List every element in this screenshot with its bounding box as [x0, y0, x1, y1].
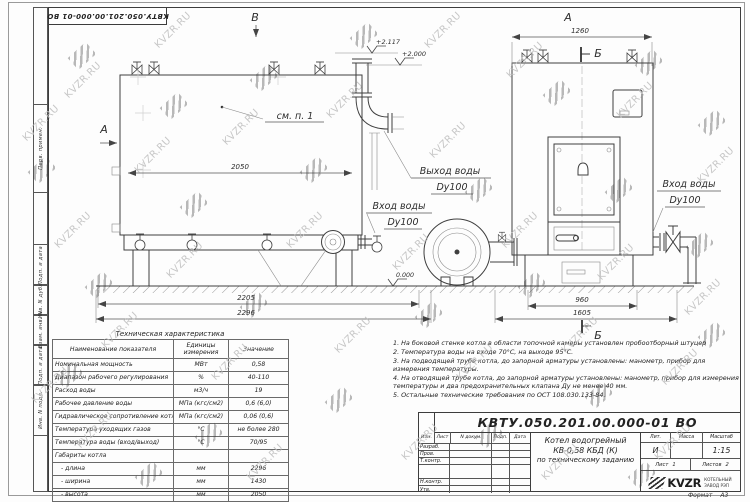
title-line-2: КВ-0,58 КБД (К) — [531, 446, 640, 456]
mass-value — [671, 443, 703, 458]
technical-notes: 1. На боковой стенке котла в области топ… — [393, 339, 741, 400]
role-row: Н.контр. — [419, 479, 530, 486]
see-note-callout: см. п. 1 — [221, 106, 324, 122]
lit-mass-scale-values: И 1:15 — [641, 443, 740, 459]
company-logo-row: KVZR КОТЕЛЬНЫЙ ЗАВОД РЭП — [641, 471, 740, 494]
boiler-side-view — [112, 59, 404, 286]
see-note-label: см. п. 1 — [277, 111, 314, 122]
sheet-number: 1 — [672, 462, 675, 468]
role-row: Разраб. — [419, 444, 530, 451]
table-row: Гидравлическое сопротивление котлаМПа (к… — [53, 411, 289, 424]
revision-table: Изм. Лист N докум. Подп. Дата Разраб. Пр… — [419, 432, 531, 491]
format-note: Формат А3 — [688, 492, 728, 499]
scale-value: 1:15 — [703, 443, 740, 458]
inlet-dy-label-right: Dy100 — [669, 195, 700, 206]
dim-2050: 2050 — [231, 163, 249, 171]
title-block-right: Лит. Масса Масштаб И 1:15 Лист 1 Листов … — [641, 432, 740, 491]
pipe-labels: Выход воды Dy100 Вход воды Dy100 Вход во… — [366, 131, 721, 233]
margin-cell: Подп. и дата — [34, 344, 47, 386]
table-row: Габариты котла — [53, 450, 289, 463]
role-row: Утв. — [419, 486, 530, 493]
table-row: Расход водым3/ч19 — [53, 385, 289, 398]
blower-fan — [424, 219, 517, 286]
lit-mass-scale-headers: Лит. Масса Масштаб — [641, 432, 740, 443]
tech-table: Наименование показателя Единицы измерени… — [52, 339, 289, 502]
table-row: - ширинамм1430 — [53, 476, 289, 489]
note-5: 5. Остальные технические требования по О… — [393, 391, 741, 399]
table-row: Номинальная мощностьМВт0,58 — [53, 359, 289, 372]
role-row: Т.контр. — [419, 458, 530, 465]
burner-flange — [322, 231, 345, 254]
dim-2205: 2205 — [237, 294, 255, 302]
ground-line — [96, 286, 694, 293]
table-row: Рабочее давление водыМПа (кгс/см2)0,6 (6… — [53, 398, 289, 411]
note-4: 4. На отводящей трубе котла, до запорной… — [393, 374, 741, 390]
elevation-2000: +2.000 — [402, 50, 426, 58]
sheet-row: Лист 1 Листов 2 — [641, 459, 740, 471]
outlet-pipe — [352, 59, 404, 190]
table-title: Техническая характеристика — [52, 330, 288, 338]
role-row — [419, 465, 530, 479]
note-3: 3. На подводящей трубе котла, до запорно… — [393, 357, 741, 373]
margin-cell: Перв. примен. — [34, 104, 47, 193]
view-a-label-right: А — [563, 11, 572, 24]
role-row: Пров. — [419, 451, 530, 458]
brand-name: KVZR — [667, 476, 701, 490]
table-row: Температура воды (вход/выход)°С70/95 — [53, 437, 289, 450]
col-header-units: Единицы измерения — [174, 340, 229, 359]
sheets-total: 2 — [726, 462, 729, 468]
elevation-zero: 0.000 — [396, 272, 414, 279]
boiler-front-view — [512, 50, 701, 286]
title-block: КВТУ.050.201.00.000-01 ВО Изм. Лист N до… — [418, 412, 741, 492]
margin-cell: Взам. инв. N — [34, 314, 47, 346]
revision-header-row: Изм. Лист N докум. Подп. Дата — [419, 432, 530, 444]
margin-cell-label: Инв. N подл. — [38, 391, 44, 429]
base-plinth — [525, 255, 633, 286]
dim-2296: 2296 — [237, 309, 255, 317]
elevation-2117: +2.117 — [376, 38, 401, 46]
inlet-pipe-side — [358, 235, 382, 252]
dim-1260: 1260 — [571, 27, 589, 35]
inlet-pipe-front — [653, 226, 701, 284]
drawing-title: Котел водогрейный КВ-0,58 КБД (К) по тех… — [531, 432, 641, 491]
table-row: Температура уходящих газов°Сне более 280 — [53, 424, 289, 437]
view-a-label-left: А — [99, 123, 108, 136]
title-line-1: Котел водогрейный — [531, 436, 640, 446]
view-arrows: А В А — [99, 11, 572, 143]
note-2: 2. Температура воды на входе 70°С, на вы… — [393, 348, 741, 356]
lit-value: И — [641, 443, 671, 458]
dim-1605: 1605 — [573, 309, 591, 317]
technical-drawing: см. п. 1 +2.117 +2.000 0.000 2050 2205 2… — [48, 7, 745, 345]
note-1: 1. На боковой стенке котла в области топ… — [393, 339, 741, 347]
col-header-value: Значение — [229, 340, 289, 359]
company-name: КОТЕЛЬНЫЙ ЗАВОД РЭП — [704, 477, 731, 487]
margin-cell: Подп. и дата — [34, 244, 47, 286]
format-value: А3 — [720, 492, 728, 499]
margin-cell-label: Подп. и дата — [38, 246, 44, 285]
view-b-label: В — [251, 11, 259, 24]
inlet-dy-label-left: Dy100 — [387, 217, 418, 228]
table-row: Диапазон рабочего регулирования%40-110 — [53, 372, 289, 385]
tech-characteristics: Техническая характеристика Наименование … — [52, 330, 288, 502]
dim-960: 960 — [575, 296, 589, 304]
furnace-door — [548, 137, 620, 255]
table-header-row: Наименование показателя Единицы измерени… — [53, 340, 289, 359]
doc-number: КВТУ.050.201.00.000-01 ВО — [434, 413, 740, 433]
section-b-top: Б — [594, 47, 602, 60]
inlet-label-left: Вход воды — [372, 201, 426, 212]
drawing-sheet: { "watermark": { "text": "KVZR.RU" }, "s… — [0, 0, 750, 500]
margin-cell: Инв. N подл. — [34, 384, 47, 436]
col-header-name: Наименование показателя — [53, 340, 174, 359]
outlet-dy-label: Dy100 — [436, 182, 467, 193]
left-margin-strip: Перв. примен. Подп. и дата Инв. N дубл. … — [33, 7, 48, 492]
margin-cell-label: Перв. примен. — [38, 127, 44, 170]
kvzr-logo-icon — [647, 477, 666, 489]
outlet-label: Выход воды — [420, 166, 481, 177]
title-line-3: по техническому заданию — [531, 456, 640, 465]
margin-cell-label: Подп. и дата — [38, 346, 44, 385]
table-row: - длинамм2296 — [53, 463, 289, 476]
inlet-label-right: Вход воды — [662, 179, 716, 190]
